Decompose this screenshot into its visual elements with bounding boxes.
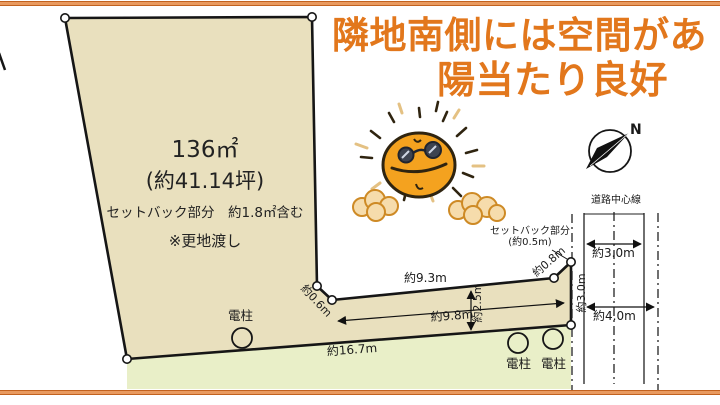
- headline-line2: 陽当たり良好: [437, 61, 668, 101]
- setback-callout-line2: (約0.5m): [484, 237, 576, 248]
- vertex-notch-bottom: [328, 296, 336, 304]
- pole-label-right: 電柱: [541, 353, 566, 372]
- pole-label-left: 電柱: [228, 305, 253, 324]
- parcel-info: 136㎡ (約41.14坪) セットバック部分 約1.8㎡含む ※更地渡し: [85, 130, 325, 251]
- road-width-label: 約3.0m: [592, 247, 635, 260]
- parcel-tsubo: (約41.14坪): [85, 165, 325, 195]
- cloud-left: [353, 190, 398, 221]
- headline-line1: 隣地南側には空間があ: [332, 17, 707, 56]
- vertex-setback-left: [550, 274, 558, 282]
- vertex-top-left: [61, 14, 69, 22]
- vertex-top-right: [308, 13, 316, 21]
- land-plot-diagram: 隣地南側には空間があ 陽当たり良好 136㎡ (約41.14坪) セットバック部…: [0, 0, 720, 405]
- road-planned-width-label: 約4.0m: [593, 310, 636, 323]
- compass-icon: [586, 130, 631, 172]
- setback-callout-line1: セットバック部分: [484, 226, 576, 237]
- dim-strip-width: 約2.5m: [472, 283, 484, 322]
- left-edge-boundary-line: [0, 53, 5, 70]
- parcel-setback-note: セットバック部分 約1.8㎡含む: [85, 201, 325, 221]
- cloud-right: [449, 193, 505, 224]
- dim-right-edge: 約3.0m: [576, 273, 588, 312]
- parcel-area: 136㎡: [85, 130, 325, 164]
- road-centerline-label: 道路中心線: [591, 196, 641, 207]
- setback-callout: セットバック部分 (約0.5m): [484, 226, 576, 248]
- parcel-condition: ※更地渡し: [85, 230, 325, 251]
- vertex-setback-right: [567, 258, 575, 266]
- dim-strip-top: 約9.3m: [404, 272, 447, 285]
- dim-strip-length: 約9.8m: [430, 308, 474, 324]
- pole-label-middle: 電柱: [506, 353, 531, 372]
- vertex-bottom-left: [123, 355, 131, 363]
- sun-illustration: [353, 102, 505, 224]
- compass-north-label: N: [630, 122, 642, 138]
- vertex-bottom-right: [567, 321, 575, 329]
